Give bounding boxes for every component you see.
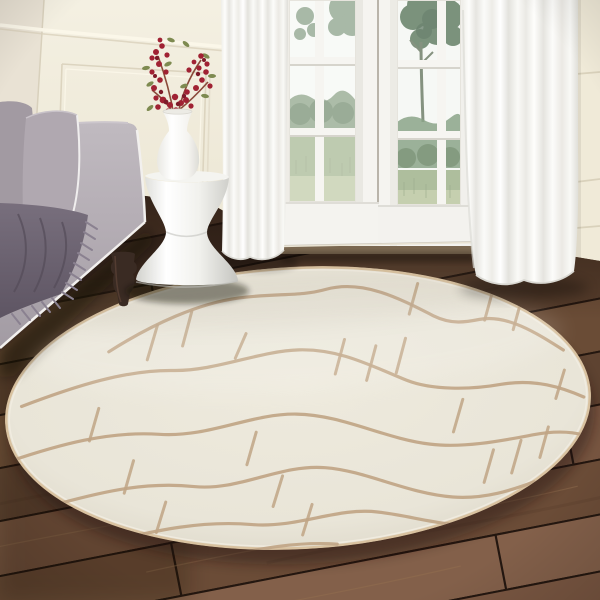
room-photo-canvas — [0, 0, 600, 600]
vignette — [0, 0, 600, 600]
room-photo — [0, 0, 600, 600]
